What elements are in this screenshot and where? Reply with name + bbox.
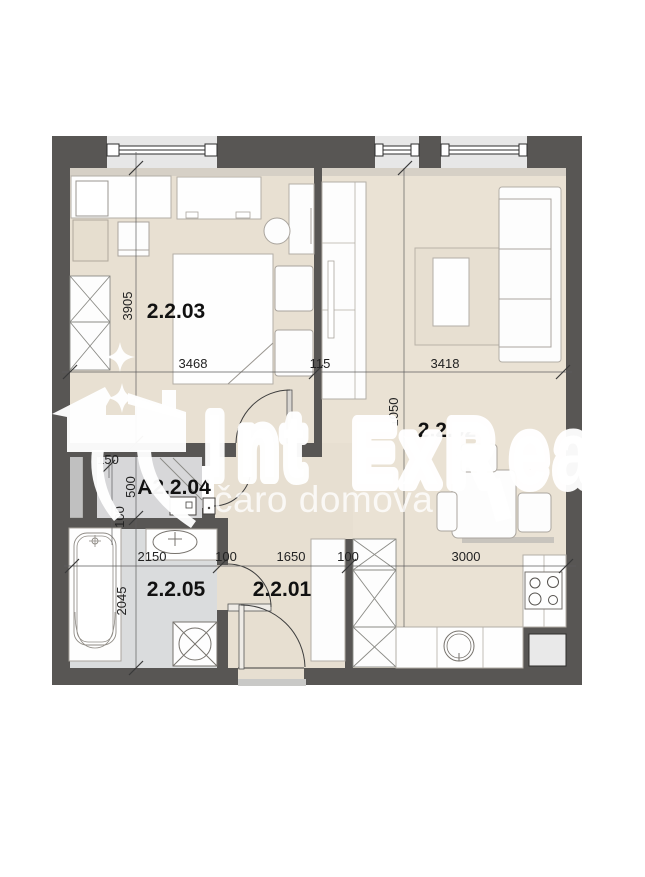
svg-text:2.2.03: 2.2.03 bbox=[147, 300, 205, 323]
svg-text:e: e bbox=[511, 403, 547, 504]
svg-text:a: a bbox=[555, 403, 592, 504]
svg-text:2.2.01: 2.2.01 bbox=[253, 578, 312, 601]
svg-text:100: 100 bbox=[337, 549, 359, 564]
svg-text:100: 100 bbox=[215, 549, 237, 564]
svg-text:l: l bbox=[618, 403, 636, 504]
svg-text:3905: 3905 bbox=[120, 292, 135, 321]
svg-text:115: 115 bbox=[310, 356, 331, 371]
svg-text:3418: 3418 bbox=[431, 356, 460, 371]
svg-text:1650: 1650 bbox=[277, 549, 306, 564]
svg-text:3468: 3468 bbox=[179, 356, 208, 371]
svg-text:2045: 2045 bbox=[114, 587, 129, 616]
svg-text:čaro domova: čaro domova bbox=[214, 479, 433, 520]
svg-text:500: 500 bbox=[123, 476, 138, 498]
svg-text:2.2.05: 2.2.05 bbox=[147, 578, 206, 601]
svg-text:2150: 2150 bbox=[138, 549, 167, 564]
svg-text:3000: 3000 bbox=[452, 549, 481, 564]
